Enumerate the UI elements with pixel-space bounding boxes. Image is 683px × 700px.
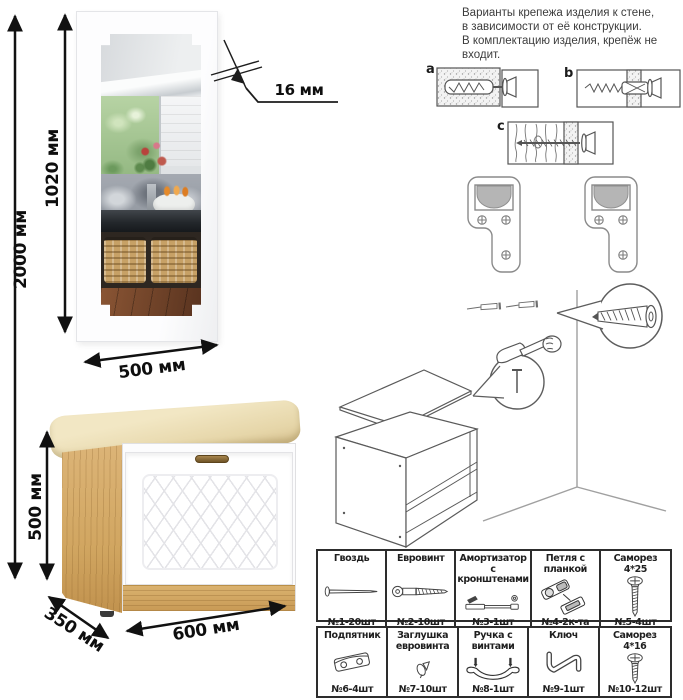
mount-option-c-diagram — [508, 122, 613, 164]
reflection-wood-floor — [101, 288, 201, 316]
hardware-cell-nail: Гвоздь №1-20шт — [318, 551, 387, 631]
cabinet-handle — [195, 455, 229, 463]
label-total-height: 2000 мм — [11, 213, 31, 289]
cabinet-door — [125, 452, 293, 585]
screw-cap-icon — [414, 659, 432, 679]
reflection-drinks — [159, 184, 191, 197]
mount-option-b-diagram — [577, 70, 680, 107]
hanging-bracket-plate — [585, 177, 637, 272]
hardware-name: Амортизатор с кронштенами — [457, 554, 528, 586]
cabinet-door-quilt-pattern — [142, 474, 278, 570]
mirror-panel — [76, 11, 218, 342]
hardware-count: №9-1шт — [542, 685, 584, 696]
hardware-name: Петля с планкой — [533, 554, 598, 575]
hardware-name: Заглушка евровинта — [389, 631, 455, 652]
wall-screw — [506, 301, 537, 308]
hardware-cell-hinge: Петля с планкой №4-2к-та — [532, 551, 601, 631]
carcass-assembly-drawing — [336, 412, 477, 547]
euroscrew-icon — [392, 584, 450, 599]
label-mirror-height: 1020 мм — [43, 132, 63, 208]
nail-icon — [324, 585, 380, 598]
hardware-count: №7-10шт — [399, 685, 447, 696]
hardware-name: Саморез 4*16 — [601, 631, 669, 652]
screw-icon — [626, 653, 644, 684]
hardware-count: №8-1шт — [472, 685, 514, 696]
reflection-under-table — [101, 232, 201, 288]
cabinet-oak-side — [62, 445, 122, 613]
reflection-wicker-basket — [104, 237, 146, 283]
hardware-name: Евровинт — [397, 554, 444, 565]
reflection-flower-bouquet — [133, 140, 171, 188]
reflection-table-top — [101, 210, 201, 232]
hardware-name: Саморез 4*25 — [602, 554, 669, 575]
mount-option-c-label: c — [497, 119, 505, 134]
mount-option-b-label: b — [564, 66, 573, 81]
hardware-name: Подпятник — [324, 631, 380, 642]
wall-corner-lines — [483, 290, 666, 521]
hardware-name: Гвоздь — [334, 554, 369, 565]
label-mirror-width: 500 мм — [113, 354, 191, 383]
screw-detail-callout — [557, 284, 662, 348]
hardware-cell-screw-4x16: Саморез 4*16 №10-12шт — [600, 628, 670, 698]
hardware-cell-handle: Ручка с винтами №8-1шт — [459, 628, 529, 698]
label-cabinet-height: 500 мм — [26, 469, 46, 545]
hardware-count: №6-4шт — [331, 685, 373, 696]
hardware-table-row-1: Гвоздь №1-20шт Евровинт №2-10шт Амортиза… — [316, 549, 672, 622]
footplate-icon — [331, 650, 373, 676]
label-cabinet-depth: 350 мм — [37, 601, 112, 659]
hammer-nail-callout — [473, 336, 561, 409]
hardware-cell-key: Ключ №9-1шт — [529, 628, 599, 698]
back-panel-sheet — [340, 370, 471, 432]
hardware-cell-euroscrew: Евровинт №2-10шт — [387, 551, 456, 631]
hardware-cell-footplate: Подпятник №6-4шт — [318, 628, 388, 698]
mirror-glass — [101, 34, 201, 316]
label-cabinet-width: 600 мм — [167, 614, 245, 646]
cabinet-foot — [100, 611, 114, 617]
handle-icon — [464, 656, 522, 682]
cabinet-front — [122, 443, 296, 611]
hardware-cell-cap: Заглушка евровинта №7-10шт — [388, 628, 458, 698]
hardware-table-row-2: Подпятник №6-4шт Заглушка евровинта №7-1… — [316, 626, 672, 698]
hardware-count: №10-12шт — [608, 685, 662, 696]
cabinet-base-plinth — [123, 585, 295, 611]
wall-screw — [467, 303, 500, 310]
mount-option-a-diagram — [437, 68, 538, 107]
furniture-spec-sheet: 2000 мм 1020 мм 500 мм 16 мм 500 мм 350 … — [0, 0, 683, 700]
label-panel-thickness: 16 мм — [266, 81, 332, 99]
hinge-icon — [539, 579, 591, 615]
mount-option-a-label: a — [426, 62, 435, 77]
hardware-name: Ключ — [549, 631, 578, 642]
mounting-note: Варианты крепежа изделия к стене, в зави… — [462, 6, 682, 62]
hardware-cell-gas-strut: Амортизатор с кронштенами №3-1шт — [456, 551, 531, 631]
gas-strut-icon — [464, 593, 522, 612]
hardware-cell-screw-4x25: Саморез 4*25 №5-4шт — [601, 551, 670, 631]
hanging-bracket-plate — [468, 177, 520, 272]
screw-icon — [626, 576, 644, 617]
hex-key-icon — [540, 650, 586, 677]
reflection-wicker-basket — [151, 237, 197, 283]
hardware-name: Ручка с винтами — [460, 631, 526, 652]
